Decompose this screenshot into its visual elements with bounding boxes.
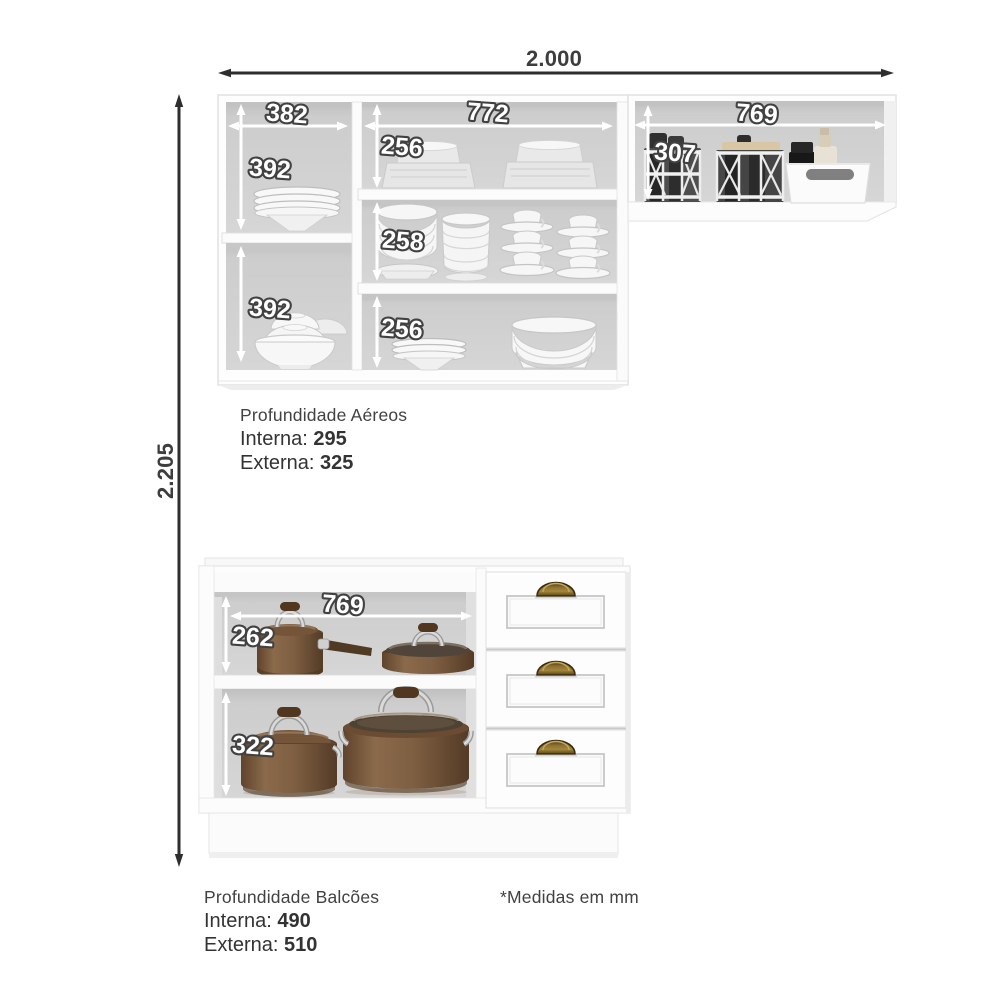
svg-text:Externa: 325: Externa: 325: [240, 452, 353, 474]
svg-text:2.205: 2.205: [153, 443, 178, 499]
svg-text:Interna: 490: Interna: 490: [204, 910, 311, 932]
svg-text:258: 258: [381, 226, 425, 257]
svg-text:*Medidas em mm: *Medidas em mm: [500, 887, 639, 907]
svg-text:382: 382: [265, 99, 309, 130]
svg-text:307: 307: [653, 138, 697, 169]
svg-text:Externa: 510: Externa: 510: [204, 934, 317, 956]
svg-text:Profundidade Aéreos: Profundidade Aéreos: [240, 405, 407, 425]
svg-text:256: 256: [380, 314, 424, 345]
svg-text:2.000: 2.000: [526, 46, 582, 71]
svg-text:772: 772: [466, 98, 510, 129]
svg-text:769: 769: [321, 590, 365, 621]
svg-text:Profundidade Balcões: Profundidade Balcões: [204, 887, 379, 907]
svg-text:769: 769: [735, 99, 779, 130]
svg-text:256: 256: [380, 132, 424, 163]
svg-text:392: 392: [248, 154, 292, 185]
svg-text:Interna: 295: Interna: 295: [240, 428, 347, 450]
svg-text:262: 262: [231, 622, 275, 653]
svg-text:392: 392: [248, 294, 292, 325]
svg-text:322: 322: [231, 731, 275, 762]
